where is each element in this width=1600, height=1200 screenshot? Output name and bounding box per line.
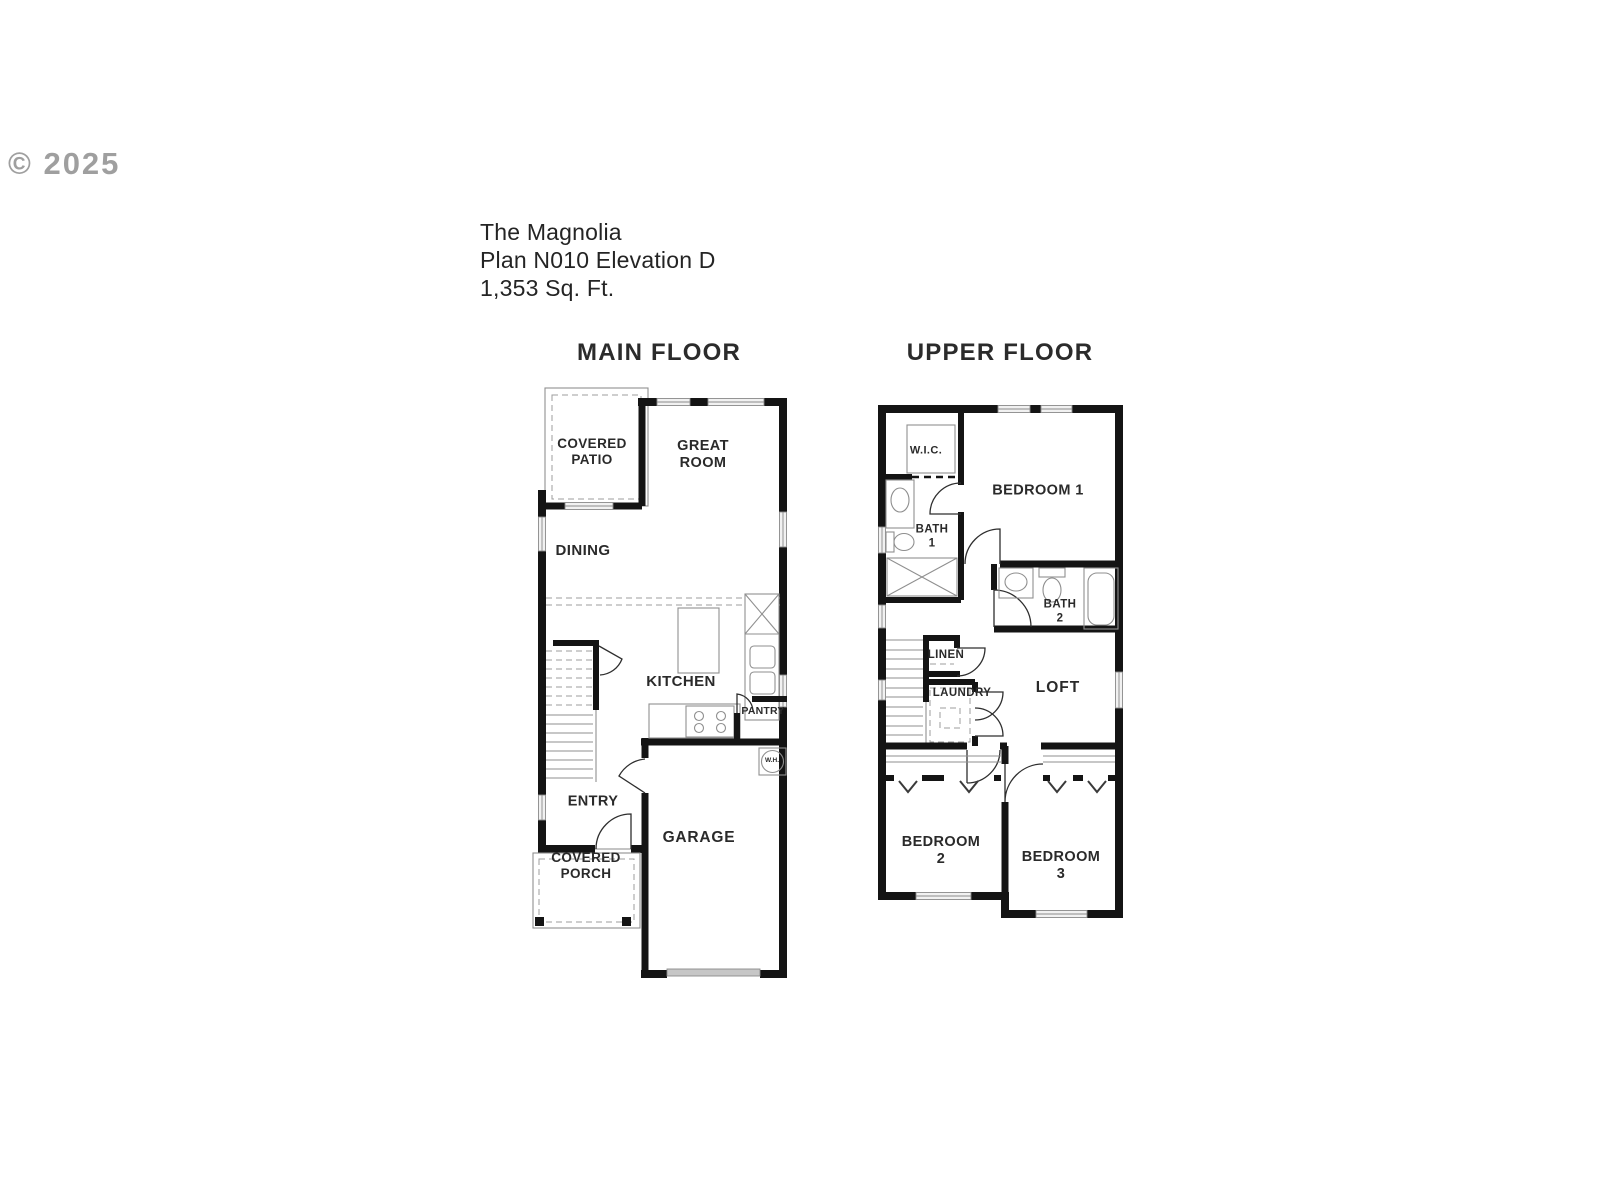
- main-floor-heading: MAIN FLOOR: [577, 339, 741, 367]
- kitchen-island: [678, 608, 719, 673]
- room-label-linen: LINEN: [928, 649, 965, 663]
- room-label-pantry: PANTRY: [741, 705, 784, 717]
- room-label-bath1: BATH 1: [916, 523, 949, 550]
- garage-entry-door: [619, 759, 645, 793]
- room-label-entry: ENTRY: [568, 793, 619, 810]
- wic-walls: [882, 409, 961, 477]
- room-label-water-heater: W.H.: [765, 757, 779, 765]
- room-label-kitchen: KITCHEN: [646, 673, 715, 691]
- upper-floor-heading: UPPER FLOOR: [907, 339, 1094, 367]
- room-label-dining: DINING: [556, 542, 611, 560]
- main-stairs: [546, 643, 622, 782]
- front-door: [595, 814, 631, 849]
- bedroom3-closet: [1043, 756, 1115, 792]
- copyright-watermark: © 2025: [8, 146, 120, 182]
- room-label-bedroom3: BEDROOM 3: [1022, 849, 1101, 883]
- room-label-covered-porch: COVERED PORCH: [551, 850, 621, 882]
- plan-name: The Magnolia: [480, 218, 716, 246]
- bedroom1-wall-door: [965, 529, 1119, 564]
- room-label-loft: LOFT: [1036, 679, 1080, 697]
- room-label-garage: GARAGE: [663, 829, 736, 847]
- bedroom2-closet: [886, 756, 1001, 792]
- upper-floor-plan: [860, 390, 1128, 920]
- plan-number: Plan N010 Elevation D: [480, 246, 716, 274]
- upper-stairs: [886, 635, 926, 746]
- room-label-wic: W.I.C.: [910, 445, 942, 458]
- garage-door: [667, 969, 760, 976]
- room-label-covered-patio: COVERED PATIO: [557, 436, 627, 468]
- room-label-bath2: BATH 2: [1044, 598, 1077, 625]
- plan-sqft: 1,353 Sq. Ft.: [480, 274, 716, 302]
- room-label-bedroom1: BEDROOM 1: [992, 482, 1083, 499]
- room-label-bedroom2: BEDROOM 2: [902, 834, 981, 868]
- room-label-laundry: LAUNDRY: [933, 687, 992, 701]
- floorplan-page: © 2025 The Magnolia Plan N010 Elevation …: [0, 0, 1600, 1200]
- plan-title-block: The Magnolia Plan N010 Elevation D 1,353…: [480, 218, 716, 302]
- kitchen-range-counter: [649, 704, 740, 738]
- room-label-great-room: GREAT ROOM: [677, 438, 729, 472]
